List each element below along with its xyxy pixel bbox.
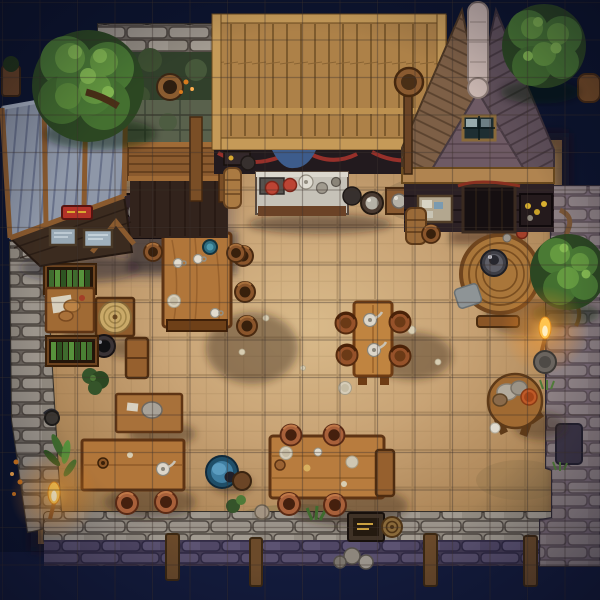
map-canvas — [0, 0, 600, 600]
tavern-battlemap — [0, 0, 600, 600]
vignette — [0, 0, 600, 600]
